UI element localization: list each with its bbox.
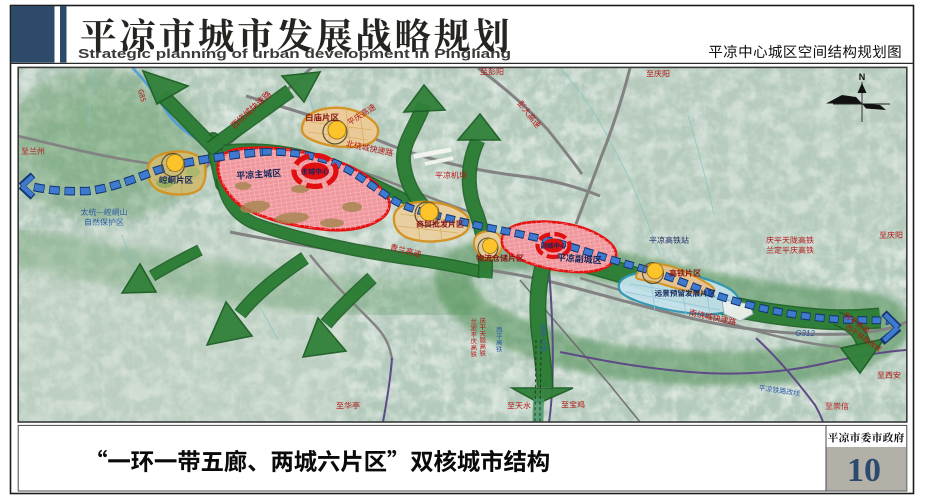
svg-text:Strategic planning of urban de: Strategic planning of urban development … [78,46,511,61]
svg-text:G312: G312 [795,329,815,338]
svg-text:10: 10 [847,452,881,489]
svg-text:N: N [859,72,866,82]
